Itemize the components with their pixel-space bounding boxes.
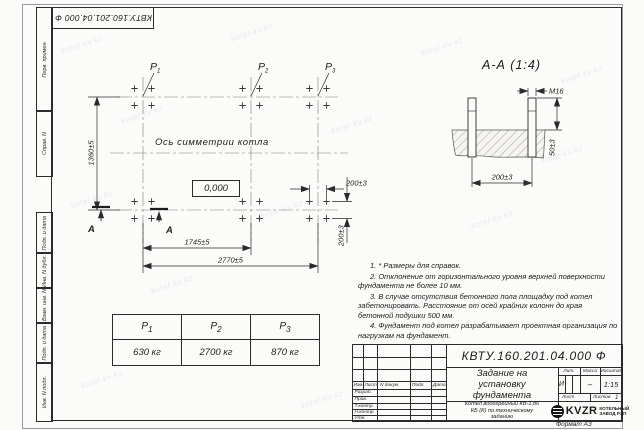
plan-dimension-texts: 1360±5 1745±5 2770±5 200±3 200±3 xyxy=(87,140,368,265)
tb-mass-label: Масса xyxy=(583,369,597,374)
title-block: Изм. Лист N докум. Подп. Дата Разраб. Пр… xyxy=(352,344,623,422)
side-cell-label: Перв. примен. xyxy=(42,41,48,78)
side-cell-label: Инв. N подл. xyxy=(42,376,48,408)
dim-height: 1360±5 xyxy=(87,140,96,166)
note-1: 1. * Размеры для справок. xyxy=(358,261,618,271)
top-stamp-number: КВТУ.160.201.04.000 Ф xyxy=(55,13,152,23)
technical-notes: 1. * Размеры для справок. 2. Отклонение … xyxy=(358,261,618,341)
dim-bolt-x: 200±3 xyxy=(345,179,368,188)
tb-sheets-label: Листов xyxy=(593,395,610,400)
tb-scale-label: Масштаб xyxy=(600,369,622,374)
company-logo-icon xyxy=(551,405,564,418)
tb-col-izm: Изм. xyxy=(354,383,364,388)
dim-bolt-spacing: 200±3 xyxy=(491,173,514,182)
anchor-bolt-marks xyxy=(131,85,329,221)
side-cell-label: Взам. инв. N xyxy=(42,289,48,321)
tb-scale-value: 1:15 xyxy=(600,375,622,393)
tb-row-razrab: Разраб. xyxy=(355,390,372,395)
company-tagline: КОТЕЛЬНЫЙ ЗАВОД РЭП xyxy=(599,406,629,417)
drawing-sheet: kotel-kv.kz kotel-kv.kz kotel-kv.kz kote… xyxy=(0,0,644,430)
dim-span-mid: 1745±5 xyxy=(185,238,211,247)
load-table-value-row: 630 кг 2700 кг 870 кг xyxy=(113,340,320,366)
load-table-header-p3: P3 xyxy=(251,315,320,340)
load-table: P1 P2 P3 630 кг 2700 кг 870 кг xyxy=(112,314,320,366)
top-rotated-stamp: КВТУ.160.201.04.000 Ф xyxy=(52,7,154,29)
side-cell-perv-primen: Перв. примен. xyxy=(36,7,53,112)
side-cell-inv-podl: Инв. N подл. xyxy=(36,362,53,422)
side-cell-podp-data-1: Подп. и дата xyxy=(36,212,53,254)
tb-drawing-subtitle: Котел водогрейный КВ-1,86 КБ (К) по техн… xyxy=(462,401,542,420)
load-value-p3: 870 кг xyxy=(251,340,320,366)
side-cell-label: Справ. N xyxy=(42,132,48,155)
load-table-header-p2: P2 xyxy=(182,315,251,340)
note-4: 4. Фундамент под котел разрабатывает про… xyxy=(358,321,618,340)
label-p1: P1 xyxy=(150,61,160,75)
section-a-a-view: М16 50±3 200±3 xyxy=(440,80,625,205)
tb-drawing-title: Задание на установку фундамента xyxy=(465,368,539,401)
plan-dimension-lines xyxy=(88,73,352,273)
level-mark-value: 0,000 xyxy=(204,183,228,194)
dim-thread: М16 xyxy=(549,87,564,96)
foundation-plan-view: А А 1360±5 1745±5 2770±5 200±3 200±3 P1 … xyxy=(80,55,380,290)
load-table-header-row: P1 P2 P3 xyxy=(113,315,320,340)
tb-row-nkontr: Н.контр. xyxy=(355,410,375,415)
tb-row-tkontr: Т.контр. xyxy=(355,404,374,409)
side-cell-label: Подп. и дата xyxy=(42,326,48,360)
tb-sheet-label: Лист xyxy=(562,395,574,400)
dim-bolt-y: 200±3 xyxy=(337,224,346,247)
tb-col-data: Дата xyxy=(433,383,446,388)
load-value-p2: 2700 кг xyxy=(182,340,251,366)
load-table-header-p1: P1 xyxy=(113,315,182,340)
note-2: 2. Отклонение от горизонтального уровня … xyxy=(358,272,618,291)
company-logo: KVZR КОТЕЛЬНЫЙ ЗАВОД РЭП xyxy=(558,401,622,421)
label-p3: P3 xyxy=(325,61,336,75)
tb-doc-number: КВТУ.160.201.04.000 Ф xyxy=(462,349,607,363)
tb-row-prov: Пров. xyxy=(355,397,368,402)
dim-protrusion: 50±3 xyxy=(548,139,557,156)
note-3: 3. В случае отсутствия бетонного пола пл… xyxy=(358,292,618,321)
tb-lit-value: И xyxy=(558,375,565,393)
dim-span-full: 2770±5 xyxy=(217,256,244,265)
side-cell-podp-data-2: Подп. и дата xyxy=(36,322,53,364)
company-logo-text: KVZR xyxy=(566,405,598,417)
side-cell-vzam-inv: Взам. инв. N xyxy=(36,287,53,324)
tb-sheets-value: 1 xyxy=(615,395,618,401)
section-plane-markers: А А xyxy=(87,207,173,236)
load-value-p1: 630 кг xyxy=(113,340,182,366)
label-p2: P2 xyxy=(258,61,269,75)
section-view-title: А-А (1:4) xyxy=(482,58,541,72)
tb-mass-value: – xyxy=(580,375,600,393)
tb-row-utv: Утв. xyxy=(355,416,366,421)
format-note: Формат А3 xyxy=(556,421,592,428)
side-cell-label: Инв. N дубл. xyxy=(42,255,48,287)
side-cell-label: Подп. и дата xyxy=(42,216,48,250)
side-cell-inv-dubl: Инв. N дубл. xyxy=(36,252,53,289)
side-cell-sprav-n: Справ. N xyxy=(36,110,53,177)
section-letter-right: А xyxy=(165,225,173,236)
tb-lit-label: Лит. xyxy=(563,369,574,374)
level-mark: 0,000 xyxy=(192,180,240,197)
boiler-symmetry-axis-label: Ось симметрии котла xyxy=(155,137,269,148)
load-point-labels: P1 P2 P3 xyxy=(150,61,336,75)
section-letter-left: А xyxy=(87,224,95,235)
tb-col-list: Лист xyxy=(365,383,377,388)
tb-col-ndokum: N докум. xyxy=(380,383,399,388)
tb-col-podp: Подп. xyxy=(412,383,425,388)
